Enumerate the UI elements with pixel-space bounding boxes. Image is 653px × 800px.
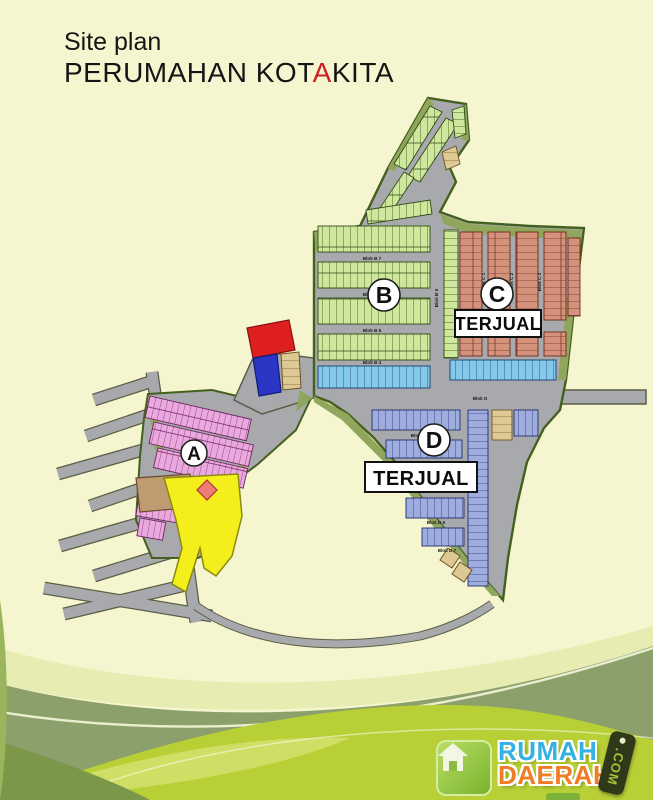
tan-col-d: [492, 410, 512, 440]
facility-red: [247, 320, 295, 358]
title-prefix: PERUMAHAN KOT: [64, 57, 313, 88]
rumah-daerah-logo: RUMAH DAERAH .COM: [436, 740, 612, 796]
blue-row-b: [318, 366, 430, 388]
east-road-stub: [556, 390, 646, 404]
road-label-d6: Blok D 6: [427, 520, 446, 525]
tag-hole: [619, 737, 626, 744]
section-a-letter: A: [187, 444, 201, 465]
site-plan-poster: Site plan PERUMAHAN KOTAKITA: [0, 0, 653, 800]
road-label-c3: Blok C 3: [537, 272, 542, 291]
title-suffix: KITA: [332, 57, 394, 88]
road-label-b4: Blok B 4: [363, 360, 382, 365]
section-c-letter: C: [489, 281, 506, 307]
terjual-label-d: TERJUAL: [373, 468, 469, 490]
terjual-label-c: TERJUAL: [455, 314, 542, 334]
title-accent-letter: A: [313, 57, 332, 88]
logo-word-daerah: DAERAH: [498, 764, 612, 788]
house-icon: [436, 740, 492, 796]
road-label-d: Blok D: [473, 396, 488, 401]
page-title: Site plan PERUMAHAN KOTAKITA: [64, 28, 394, 89]
title-line2: PERUMAHAN KOTAKITA: [64, 57, 394, 89]
blue-row-c: [450, 360, 556, 380]
road-label-b5: Blok B 5: [363, 328, 382, 333]
logo-tag-text: .COM: [604, 747, 628, 787]
section-b-letter: B: [376, 282, 393, 308]
title-line1: Site plan: [64, 28, 394, 57]
site-plan-svg: Blok B 7 Blok B 6 Blok B 5 Blok B 4 Blok…: [0, 0, 653, 800]
road-label-b7: Blok B 7: [363, 256, 382, 261]
house-icon-glyph: [436, 740, 470, 774]
facility-tan: [281, 352, 301, 390]
section-d-letter: D: [426, 427, 443, 453]
road-label-d7: Blok D 7: [438, 548, 457, 553]
road-label-b9: Blok B 9: [434, 288, 439, 307]
section-a-area: [136, 320, 314, 592]
estate-body: Blok B 7 Blok B 6 Blok B 5 Blok B 4 Blok…: [314, 98, 646, 600]
logo-words: RUMAH DAERAH: [498, 740, 612, 788]
logo-green-chip: [546, 793, 580, 800]
